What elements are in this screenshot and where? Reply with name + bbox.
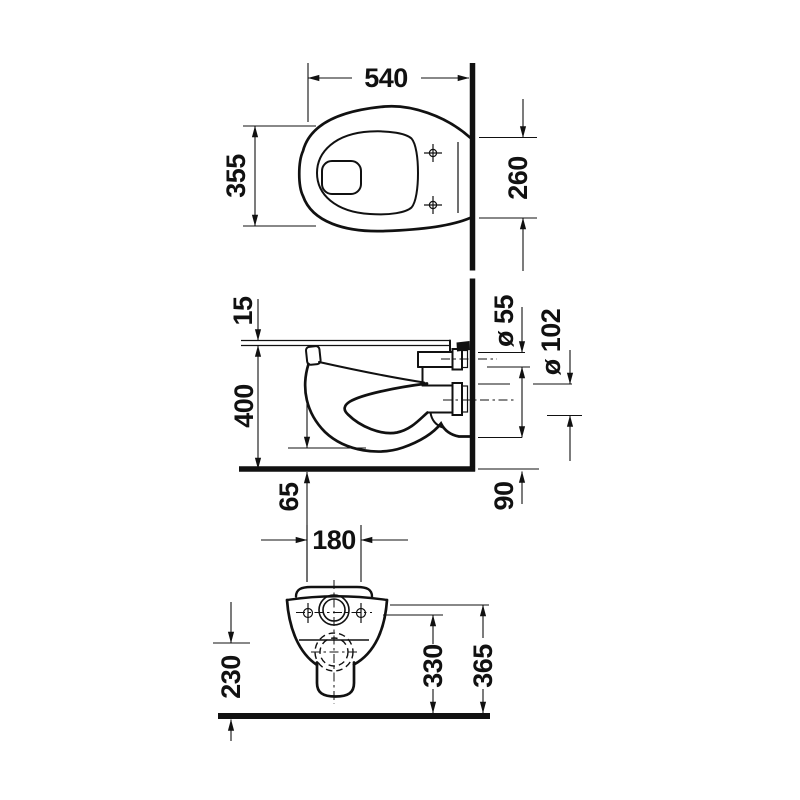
top-view: 540 355 260 [221,63,537,271]
seat-ring-plan [317,131,418,214]
mounting-hole-cross [424,144,442,162]
trap-outline-side [345,384,428,434]
toilet-dimension-drawing: 540 355 260 [0,0,800,800]
dim-label-outlet-height: 90 [489,481,519,510]
dim-label-outlet-diameter: ø 102 [536,309,566,376]
mounting-hole-cross [424,196,442,214]
drain-shroud-front [317,663,354,697]
outlet-flange [453,383,463,415]
dim-label-bowl-clearance: 65 [274,482,304,512]
front-view: 180 230 33 [213,525,498,741]
bowl-outline-plan [299,106,470,231]
side-view: 15 400 65 [228,279,582,583]
dim-label-seat-thickness: 15 [228,296,258,326]
mounting-bracket [457,341,471,352]
dim-label-inlet-diameter: ø 55 [489,295,519,348]
dim-label-outlet-center-height: 330 [418,644,448,688]
rim-underside-line [319,362,424,383]
dim-label-top-width: 540 [364,63,408,93]
dim-label-rim-height: 400 [229,384,259,428]
dim-label-top-depth: 355 [221,154,251,198]
bowl-left-side-front [287,600,317,665]
drain-opening-plan [322,161,361,194]
dim-label-top-height: 365 [468,644,498,688]
dim-label-bolt-spacing: 180 [312,525,356,555]
dim-label-top-rear-width: 260 [503,156,533,200]
technical-drawing-page: 540 355 260 [0,0,800,800]
dim-label-side-height: 230 [216,655,246,699]
